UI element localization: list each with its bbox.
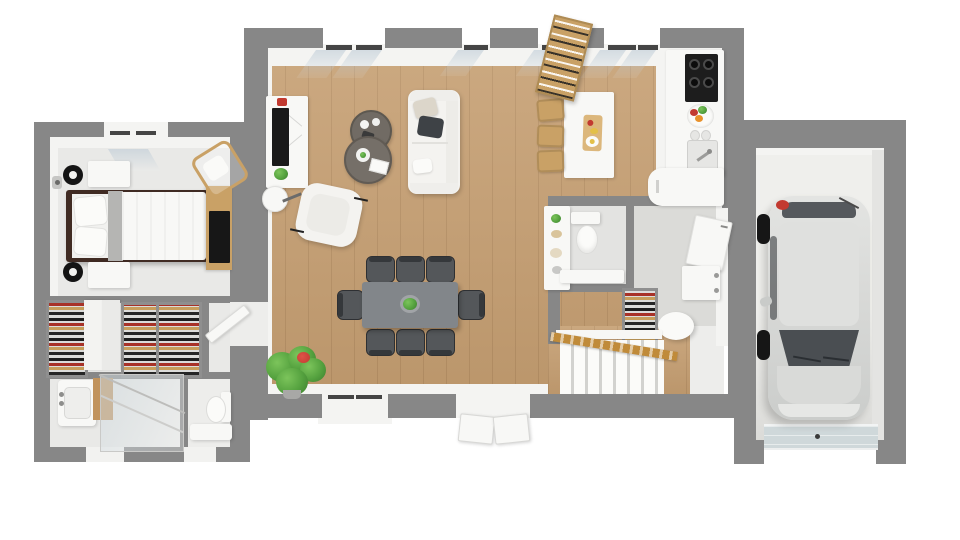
sofa-pillow-dark xyxy=(417,115,445,139)
shelf-shell-2 xyxy=(550,248,562,258)
bedroom-window-sill-b xyxy=(136,131,156,135)
table-lamp-top xyxy=(63,165,83,185)
dining-chair-left xyxy=(337,290,364,320)
plant-pot xyxy=(283,390,301,399)
bedroom-monitor xyxy=(209,211,230,263)
bed-duvet xyxy=(122,192,206,260)
wall-garage-top xyxy=(734,120,906,148)
bedroom-top-wall-face xyxy=(48,135,232,149)
car-windshield xyxy=(779,330,859,366)
closet-panel-1 xyxy=(84,300,102,370)
clothes-rack-2 xyxy=(121,302,160,378)
sliding-window-outer-sill xyxy=(318,418,392,424)
washbasin-vanity xyxy=(58,380,96,426)
wall-living-bottom-a xyxy=(244,394,322,418)
nightstand-bottom xyxy=(88,262,130,288)
sliding-window-sill-a xyxy=(328,395,354,399)
cutting-board xyxy=(582,115,602,152)
hall-cabinet xyxy=(682,266,720,300)
shelf-apple xyxy=(551,214,561,223)
windshield-wiper-2 xyxy=(823,356,849,361)
shoe-rack xyxy=(622,288,658,348)
lemon xyxy=(590,128,598,134)
sofa-cushion-gap xyxy=(412,142,448,144)
basin-faucet-1 xyxy=(59,392,64,397)
sliding-window-sill-b xyxy=(356,395,382,399)
serving-plate xyxy=(356,148,370,162)
wall-living-top-c xyxy=(490,28,538,48)
fruit-green xyxy=(698,106,707,114)
car-side-glass xyxy=(770,236,777,320)
faucet-base xyxy=(707,149,712,154)
wall-sconce xyxy=(52,176,62,189)
clothes-rack-1 xyxy=(46,300,88,378)
closet-panel-2 xyxy=(102,300,120,370)
fruit-orange xyxy=(695,115,703,122)
wall-bedroom-bottom-a xyxy=(34,447,86,462)
burner-1 xyxy=(689,59,700,70)
dining-chair-bottom-2 xyxy=(396,329,425,356)
burner-3 xyxy=(689,77,700,88)
toilet-bowl xyxy=(576,225,598,254)
tv-red-speaker xyxy=(277,98,287,106)
nightstand-top xyxy=(88,161,130,187)
bar-stool-1 xyxy=(536,98,565,122)
shower-glass-edge-2 xyxy=(100,395,183,433)
wall-bedroom-right-lower xyxy=(230,346,250,462)
coffee-cup-2 xyxy=(372,118,380,126)
door-handle xyxy=(721,225,728,228)
car-roof xyxy=(779,222,859,326)
burner-2 xyxy=(703,59,714,70)
car xyxy=(768,196,870,420)
car-wheel-front-left xyxy=(757,330,770,360)
bed-runner xyxy=(108,191,123,261)
wc-bench xyxy=(560,270,624,283)
french-door-leaf-left xyxy=(458,413,496,445)
floor-plan-render xyxy=(0,0,960,540)
french-door-leaf-right xyxy=(493,413,531,445)
wall-garage-bottom-right xyxy=(876,440,906,464)
wall-bedroom-left xyxy=(34,122,50,462)
garage-right-wall-face xyxy=(872,150,884,440)
bath-bench xyxy=(190,424,232,440)
dining-chair-bottom-3 xyxy=(426,329,455,356)
desk-chair-cushion xyxy=(201,154,230,183)
clothes-rack-3 xyxy=(156,302,202,378)
fruit-bowl xyxy=(687,104,714,128)
cabinet-knob-2 xyxy=(714,288,719,293)
kitchen-counter xyxy=(666,50,724,176)
car-rear-window xyxy=(782,202,856,218)
wall-garage-right xyxy=(884,120,906,464)
car-hood xyxy=(777,366,861,404)
bed-pillow-2 xyxy=(73,226,108,258)
garage-door-handle xyxy=(815,434,820,439)
burner-4 xyxy=(703,77,714,88)
sofa-armrest-bottom xyxy=(410,183,458,194)
dining-chair-right xyxy=(458,290,485,320)
breakfast-plate xyxy=(586,136,599,147)
table-lamp-bottom xyxy=(63,262,83,282)
shower-glass xyxy=(100,374,184,452)
bath-door-gap-2 xyxy=(184,447,216,462)
centerpiece-plant xyxy=(403,298,417,310)
plate-garnish xyxy=(360,152,366,158)
bedroom-window-sill-a xyxy=(110,131,130,135)
car-front-bumper xyxy=(778,404,860,417)
sofa xyxy=(408,90,460,194)
bed-pillow-1 xyxy=(73,194,109,227)
egg-yolk xyxy=(590,139,595,144)
dining-chair-top-3 xyxy=(426,256,455,283)
armchair-cushion xyxy=(305,192,352,237)
shelf-shell-1 xyxy=(551,230,562,238)
sofa-pillow-white xyxy=(412,158,433,174)
tv xyxy=(272,108,289,166)
basin-faucet-2 xyxy=(59,401,64,406)
wall-garage-bottom-left xyxy=(734,440,764,464)
toilet-tank xyxy=(571,212,600,224)
tv-stand-plant xyxy=(274,168,288,180)
wall-living-top-b xyxy=(385,28,462,48)
tomato xyxy=(587,120,593,126)
tv-cable-decor xyxy=(288,114,302,126)
magazine xyxy=(369,158,390,175)
cabinet-handle xyxy=(656,180,659,193)
lamp-bottom-center xyxy=(69,268,77,276)
cooktop xyxy=(685,54,718,102)
bar-stool-3 xyxy=(537,150,565,173)
car-rear-logo xyxy=(776,200,789,210)
car-wheel-rear-left xyxy=(757,214,770,244)
cabinet-knob-1 xyxy=(714,273,719,278)
dining-chair-top-2 xyxy=(396,256,425,283)
wall-living-bottom-c xyxy=(530,394,744,418)
wall-living-bottom-b xyxy=(388,394,456,418)
washbasin xyxy=(64,387,91,419)
hall-ottoman xyxy=(658,312,694,340)
coffee-cup-1 xyxy=(360,120,369,129)
shower-glass-edge-1 xyxy=(99,374,186,414)
windshield-wiper-1 xyxy=(793,356,821,363)
dining-chair-bottom-1 xyxy=(366,329,395,356)
dining-chair-top-1 xyxy=(366,256,395,283)
kitchen-island xyxy=(564,92,614,178)
garage-door xyxy=(764,424,878,450)
bar-stool-2 xyxy=(537,125,565,148)
lamp-top-center xyxy=(69,171,77,179)
wall-garage-left xyxy=(734,120,756,464)
sconce-dot xyxy=(55,180,60,185)
bath-toilet-bowl xyxy=(206,396,226,423)
kitchen-corner-cabinet xyxy=(648,168,724,206)
dining-table xyxy=(362,282,458,328)
tv-cable-decor-2 xyxy=(288,134,302,146)
plant-red-flowers xyxy=(297,352,310,363)
coffee-table-large xyxy=(344,136,392,184)
